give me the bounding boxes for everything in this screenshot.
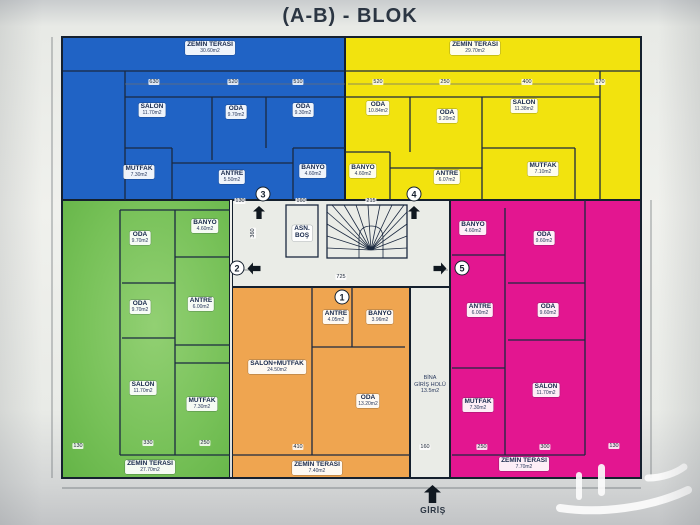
entrance-hall-label: BİNA GİRİŞ HOLÜ 13.5m2 — [414, 375, 446, 395]
room-label-teras: ZEMİN TERASI 29.70m2 — [450, 41, 500, 55]
dimension-label: 250 — [439, 79, 450, 85]
floor-plan-photo: (A-B) - BLOK — [0, 0, 700, 525]
room-area: 9.70m2 — [228, 113, 245, 118]
unit-4-yellow — [345, 37, 641, 200]
room-area: 4.60m2 — [193, 227, 216, 232]
room-label-antre: ANTRE 6.00m2 — [467, 303, 493, 317]
room-label-oda: ODA 9.70m2 — [226, 105, 247, 119]
room-label-oda: ODA 9.70m2 — [130, 300, 151, 314]
room-label-teras: ZEMİN TERASI 7.40m2 — [292, 461, 342, 475]
room-label-oda: ODA 9.30m2 — [293, 103, 314, 117]
dimension-label: 330 — [142, 440, 153, 446]
room-area: 9.70m2 — [132, 308, 149, 313]
room-label-salon: SALON 11.70m2 — [139, 103, 166, 117]
room-label-antre: ANTRE 4.05m2 — [323, 310, 349, 324]
unit-number-5: 5 — [455, 261, 470, 276]
dimension-label: 250 — [199, 440, 210, 446]
room-area: 7.70m2 — [501, 465, 547, 470]
unit-number-3: 3 — [256, 187, 271, 202]
dimension-label: 520 — [227, 79, 238, 85]
room-label-oda: ODA 9.60m2 — [534, 231, 555, 245]
room-area: 7.30m2 — [188, 405, 215, 410]
room-label-antre: ANTRE 6.07m2 — [434, 170, 460, 184]
dimension-label: 630 — [148, 79, 159, 85]
room-label-mutfak: MUTFAK 7.10m2 — [527, 162, 558, 176]
room-area: 4.60m2 — [301, 172, 324, 177]
room-area: 11.70m2 — [535, 391, 558, 396]
unit-number-2: 2 — [230, 261, 245, 276]
room-label-mutfak: MUTFAK 7.30m2 — [123, 165, 154, 179]
room-area: 4.60m2 — [461, 229, 484, 234]
room-label-banyo: BANYO 4.60m2 — [349, 164, 376, 178]
room-label-oda: ODA 10.84m2 — [366, 101, 389, 115]
room-area: 4.05m2 — [325, 318, 347, 323]
dimension-label: 410 — [292, 444, 303, 450]
room-label-salon-mutfak: SALON+MUTFAK 24.50m2 — [248, 360, 306, 374]
unit-number-1: 1 — [335, 290, 350, 305]
room-label-salon: SALON 11.70m2 — [533, 383, 560, 397]
room-area: 7.30m2 — [125, 173, 152, 178]
room-label-salon: SALON 11.38m2 — [511, 99, 538, 113]
main-entrance-label: GİRİŞ — [420, 505, 446, 515]
room-label-oda: ODA 13.20m2 — [356, 394, 379, 408]
room-area: 5.50m2 — [221, 178, 243, 183]
room-label-teras: ZEMİN TERASI 30.60m2 — [185, 41, 235, 55]
room-area: 10.84m2 — [368, 109, 387, 114]
room-label-antre: ANTRE 6.00m2 — [188, 297, 214, 311]
room-label-oda: ODA 9.70m2 — [130, 231, 151, 245]
room-area: 9.70m2 — [132, 239, 149, 244]
dimension-label: 510 — [292, 79, 303, 85]
unit-number-4: 4 — [407, 187, 422, 202]
room-label-banyo: BANYO 4.60m2 — [299, 164, 326, 178]
room-label-teras: ZEMİN TERASI 7.70m2 — [499, 457, 549, 471]
dimension-label: 520 — [372, 79, 383, 85]
room-label-banyo: BANYO 3.96m2 — [366, 310, 393, 324]
room-label-banyo: BANYO 4.60m2 — [191, 219, 218, 233]
dimension-label: 250 — [476, 444, 487, 450]
dimension-label: 300 — [539, 444, 550, 450]
room-area: 27.70m2 — [127, 468, 173, 473]
room-area: 6.00m2 — [469, 311, 491, 316]
dimension-label: 130 — [608, 443, 619, 449]
room-area: 6.00m2 — [190, 305, 212, 310]
room-area: 9.30m2 — [295, 111, 312, 116]
room-area: 6.07m2 — [436, 178, 458, 183]
room-label-oda: ODA 9.20m2 — [437, 109, 458, 123]
dimension-label: 215 — [365, 198, 376, 204]
dimension-label: 170 — [594, 79, 605, 85]
main-entrance-arrow-icon — [424, 485, 441, 503]
dimension-label: 160 — [419, 444, 430, 450]
dimension-label: 360 — [250, 227, 256, 238]
dimension-label: 725 — [335, 274, 346, 280]
room-area: 4.60m2 — [351, 172, 374, 177]
page-title: (A-B) - BLOK — [0, 5, 700, 28]
room-area: 11.70m2 — [141, 111, 164, 116]
room-area: 9.60m2 — [536, 239, 553, 244]
room-area: 7.40m2 — [294, 469, 340, 474]
room-area: 3.96m2 — [368, 318, 391, 323]
room-label-antre: ANTRE 5.50m2 — [219, 170, 245, 184]
room-label-mutfak: MUTFAK 7.30m2 — [186, 397, 217, 411]
room-area: 7.30m2 — [464, 406, 491, 411]
room-label-teras: ZEMİN TERASI 27.70m2 — [125, 460, 175, 474]
dimension-label: 130 — [72, 443, 83, 449]
room-label-salon: SALON 11.70m2 — [130, 381, 157, 395]
room-area: 11.70m2 — [132, 389, 155, 394]
dimension-label: 130 — [234, 198, 245, 204]
room-label-mutfak: MUTFAK 7.30m2 — [462, 398, 493, 412]
dimension-label: 400 — [521, 79, 532, 85]
room-area: 11.38m2 — [513, 107, 536, 112]
room-area: 9.20m2 — [439, 117, 456, 122]
room-area: 30.60m2 — [187, 49, 233, 54]
room-name: BOŞ — [294, 233, 310, 240]
room-label-banyo: BANYO 4.60m2 — [459, 221, 486, 235]
room-area: 24.50m2 — [250, 368, 304, 373]
room-area: 9.60m2 — [540, 311, 557, 316]
room-area: 13.20m2 — [358, 402, 377, 407]
room-label-oda: ODA 9.60m2 — [538, 303, 559, 317]
room-area: 29.70m2 — [452, 49, 498, 54]
room-area: 7.10m2 — [529, 170, 556, 175]
dimension-label: 160 — [295, 198, 306, 204]
elevator-shaft-label: ASN. BOŞ — [292, 225, 312, 241]
